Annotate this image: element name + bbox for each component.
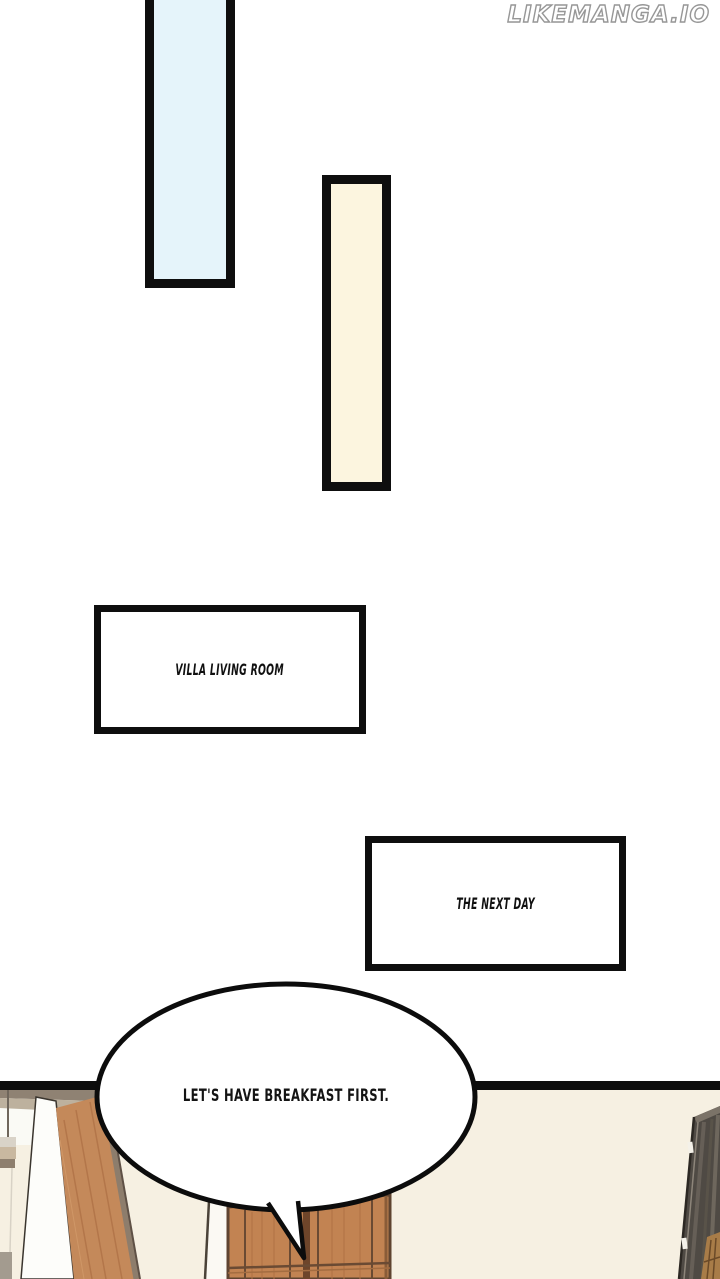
caption-box-villa: VILLA LIVING ROOM: [94, 605, 366, 734]
speech-bubble-tail: [268, 1201, 304, 1258]
caption-villa-label: VILLA LIVING ROOM: [176, 660, 285, 679]
speech-bubble: [0, 975, 720, 1270]
site-watermark: LIKEMANGA.IO: [507, 2, 710, 28]
caption-box-next-day: THE NEXT DAY: [365, 836, 626, 971]
blue-vertical-bar: [145, 0, 235, 288]
caption-next-day-label: THE NEXT DAY: [456, 894, 535, 913]
speech-bubble-text: LET'S HAVE BREAKFAST FIRST.: [153, 1086, 420, 1106]
cream-vertical-bar: [322, 175, 391, 491]
manga-page[interactable]: LIKEMANGA.IO VILLA LIVING ROOM THE NEXT …: [0, 0, 720, 1279]
